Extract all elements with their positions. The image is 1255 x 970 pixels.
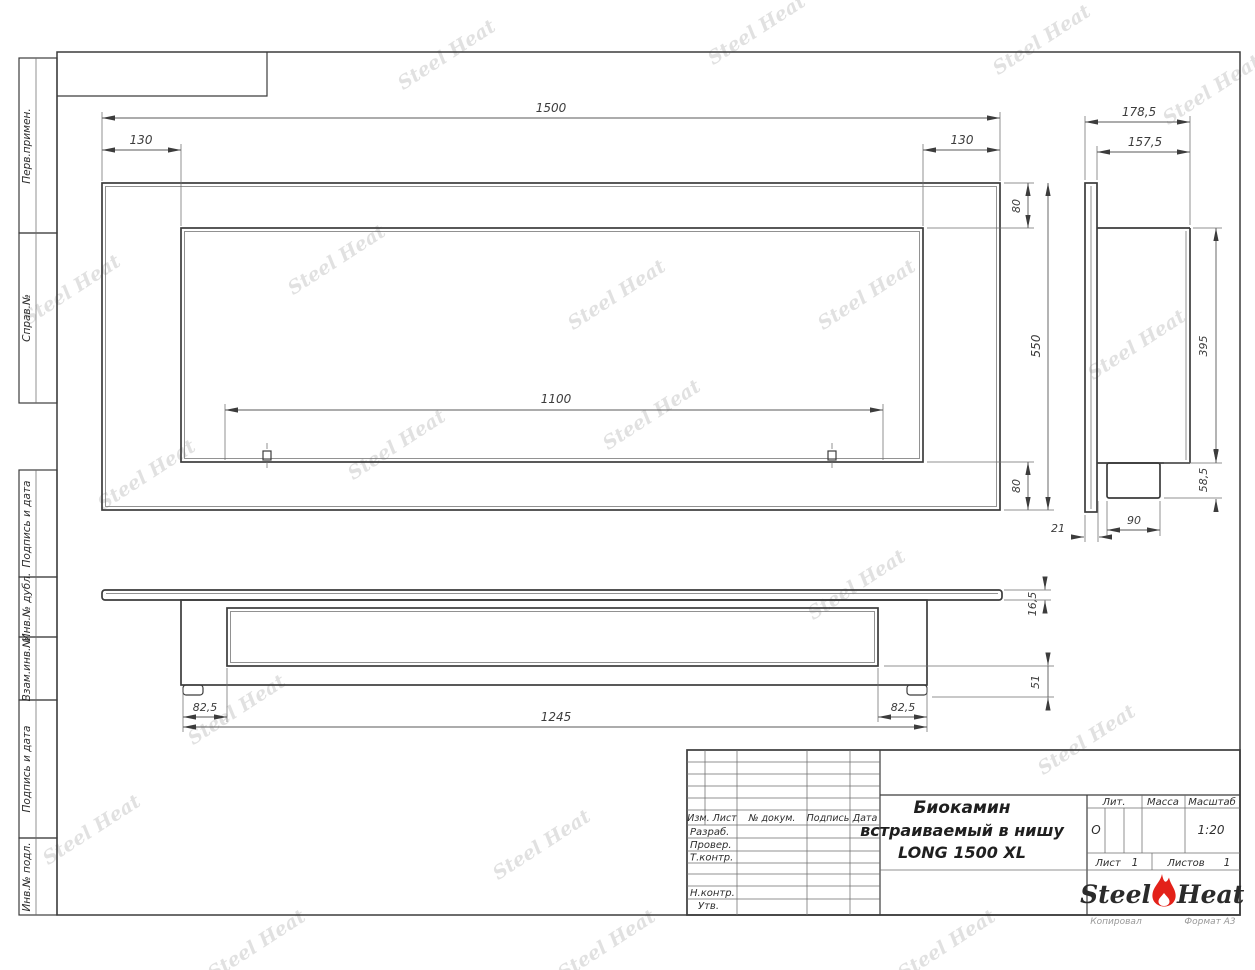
foot-left bbox=[183, 685, 203, 695]
tb-row-razrab: Разраб. bbox=[690, 826, 729, 838]
margin-label-podpis-data-upper: Подпись и дата bbox=[21, 481, 33, 568]
tb-masshtab-value: 1:20 bbox=[1198, 823, 1225, 837]
dim-side-height-tray: 58,5 bbox=[1197, 468, 1210, 493]
front-view: 1500 130 130 1100 80 550 80 bbox=[102, 101, 1054, 510]
watermark-text: Steel Heat bbox=[39, 790, 145, 869]
dim-bottom-inset-left: 82,5 bbox=[193, 701, 218, 714]
sheet-frame bbox=[57, 52, 1240, 915]
foot-right bbox=[907, 685, 927, 695]
dim-side-depth-total: 178,5 bbox=[1122, 105, 1156, 119]
watermark-text: Steel Heat bbox=[1084, 305, 1190, 384]
margin-label-vzam-inv: Взам.инв.№ bbox=[21, 637, 33, 702]
title-block: Изм. Лист № докум. Подпись Дата Разраб. … bbox=[687, 750, 1245, 915]
dim-side-width-tray: 90 bbox=[1127, 514, 1141, 527]
dim-front-border-top: 80 bbox=[1010, 199, 1023, 213]
watermark-layer: Steel Heat Steel Heat Steel Heat Steel H… bbox=[19, 0, 1255, 970]
dim-front-width-total: 1500 bbox=[536, 101, 567, 115]
doc-title-line3: LONG 1500 XL bbox=[898, 843, 1026, 862]
margin-label-inv-dubl: Инв.№ дубл. bbox=[21, 573, 33, 642]
copied-note: Копировал bbox=[1090, 917, 1142, 927]
margin-label-podpis-data-lower: Подпись и дата bbox=[21, 726, 33, 813]
tb-listov-label: Листов bbox=[1166, 858, 1204, 869]
watermark-text: Steel Heat bbox=[284, 220, 390, 299]
tb-col-podpis: Подпись bbox=[807, 813, 850, 824]
margin-columns: Перв.примен. Справ.№ Подпись и дата Инв.… bbox=[19, 58, 57, 915]
format-note: Формат А3 bbox=[1184, 917, 1236, 927]
doc-title-line1: Биокамин bbox=[913, 798, 1010, 818]
tb-row-utv: Утв. bbox=[698, 901, 719, 912]
tb-listov-value: 1 bbox=[1224, 857, 1231, 869]
dim-side-height-body: 395 bbox=[1197, 336, 1210, 357]
dim-front-opening-width: 1100 bbox=[541, 392, 572, 406]
side-view: 178,5 157,5 395 58,5 90 21 bbox=[1051, 105, 1222, 542]
dim-bottom-body-length: 1245 bbox=[541, 710, 572, 724]
dim-front-inset-left: 130 bbox=[130, 133, 153, 147]
tb-col-izm-list: Изм. Лист bbox=[687, 813, 737, 824]
dim-front-border-bottom: 80 bbox=[1010, 479, 1023, 493]
slot-mark-right bbox=[828, 443, 836, 468]
watermark-text: Steel Heat bbox=[489, 805, 595, 884]
tb-row-tkontr: Т.контр. bbox=[690, 853, 733, 864]
dim-bottom-inset-right: 82,5 bbox=[891, 701, 916, 714]
tb-col-no-dokum: № докум. bbox=[748, 813, 796, 824]
doc-title-line2: встраиваемый в нишу bbox=[860, 821, 1064, 840]
margin-label-sprav-no: Справ.№ bbox=[21, 294, 33, 342]
tb-masshtab-label: Масштаб bbox=[1188, 796, 1236, 808]
logo-steel-text: Steel bbox=[1080, 880, 1151, 909]
dim-bottom-lower-depth: 51 bbox=[1029, 675, 1042, 689]
logo: Steel Heat bbox=[1080, 874, 1245, 909]
watermark-text: Steel Heat bbox=[94, 435, 200, 514]
dim-front-inset-right: 130 bbox=[951, 133, 974, 147]
tb-lit-value: О bbox=[1091, 823, 1100, 837]
slot-mark-left bbox=[263, 443, 271, 468]
watermark-text: Steel Heat bbox=[804, 545, 910, 624]
watermark-text: Steel Heat bbox=[564, 255, 670, 334]
watermark-text: Steel Heat bbox=[814, 255, 920, 334]
watermark-text: Steel Heat bbox=[1034, 700, 1140, 779]
dim-side-gap-front: 21 bbox=[1051, 522, 1065, 535]
margin-label-perv-primen: Перв.примен. bbox=[21, 108, 33, 183]
drawing-sheet: Steel Heat Steel Heat Steel Heat Steel H… bbox=[0, 0, 1255, 970]
watermark-text: Steel Heat bbox=[599, 375, 705, 454]
tb-row-prover: Провер. bbox=[690, 840, 732, 851]
tb-list-value: 1 bbox=[1132, 857, 1139, 869]
logo-heat-text: Heat bbox=[1176, 880, 1245, 909]
watermark-text: Steel Heat bbox=[989, 0, 1095, 79]
dim-bottom-flange-thickness: 16,5 bbox=[1026, 592, 1039, 617]
watermark-text: Steel Heat bbox=[344, 405, 450, 484]
dim-side-depth-body: 157,5 bbox=[1128, 135, 1162, 149]
tb-list-label: Лист bbox=[1094, 858, 1122, 869]
watermark-text: Steel Heat bbox=[19, 250, 125, 329]
tb-row-nkontr: Н.контр. bbox=[690, 888, 735, 899]
watermark-text: Steel Heat bbox=[704, 0, 810, 70]
tb-lit-label: Лит. bbox=[1101, 797, 1125, 808]
margin-label-inv-podl: Инв.№ подл. bbox=[21, 842, 33, 911]
watermark-text: Steel Heat bbox=[394, 15, 500, 94]
tb-massa-label: Масса bbox=[1147, 797, 1179, 808]
dim-front-height-total: 550 bbox=[1029, 334, 1043, 357]
